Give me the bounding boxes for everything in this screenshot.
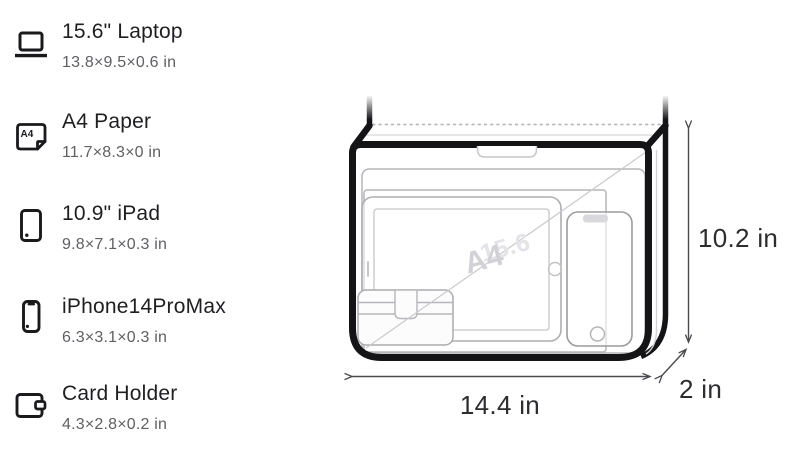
bag-size-diagram: 15.6" Laptop 13.8×9.5×0.6 in A4 A4 Paper… xyxy=(0,0,800,455)
bag-handle-notch xyxy=(478,146,537,157)
depth-dimension-label: 2 in xyxy=(679,374,722,404)
bag-top-right-depth-edge xyxy=(647,126,666,148)
width-dimension-label: 14.4 in xyxy=(460,390,540,420)
bag-diagram: 15.6 A4 10.2 in 14.4 in 2 in xyxy=(0,0,800,455)
depth-dimension-arrow xyxy=(662,350,686,376)
iphone-notch xyxy=(583,215,608,223)
card-holder-outline xyxy=(358,290,453,345)
iphone-outline xyxy=(567,212,632,346)
height-dimension-label: 10.2 in xyxy=(698,223,778,253)
bag-contents: 15.6 A4 xyxy=(358,152,646,353)
